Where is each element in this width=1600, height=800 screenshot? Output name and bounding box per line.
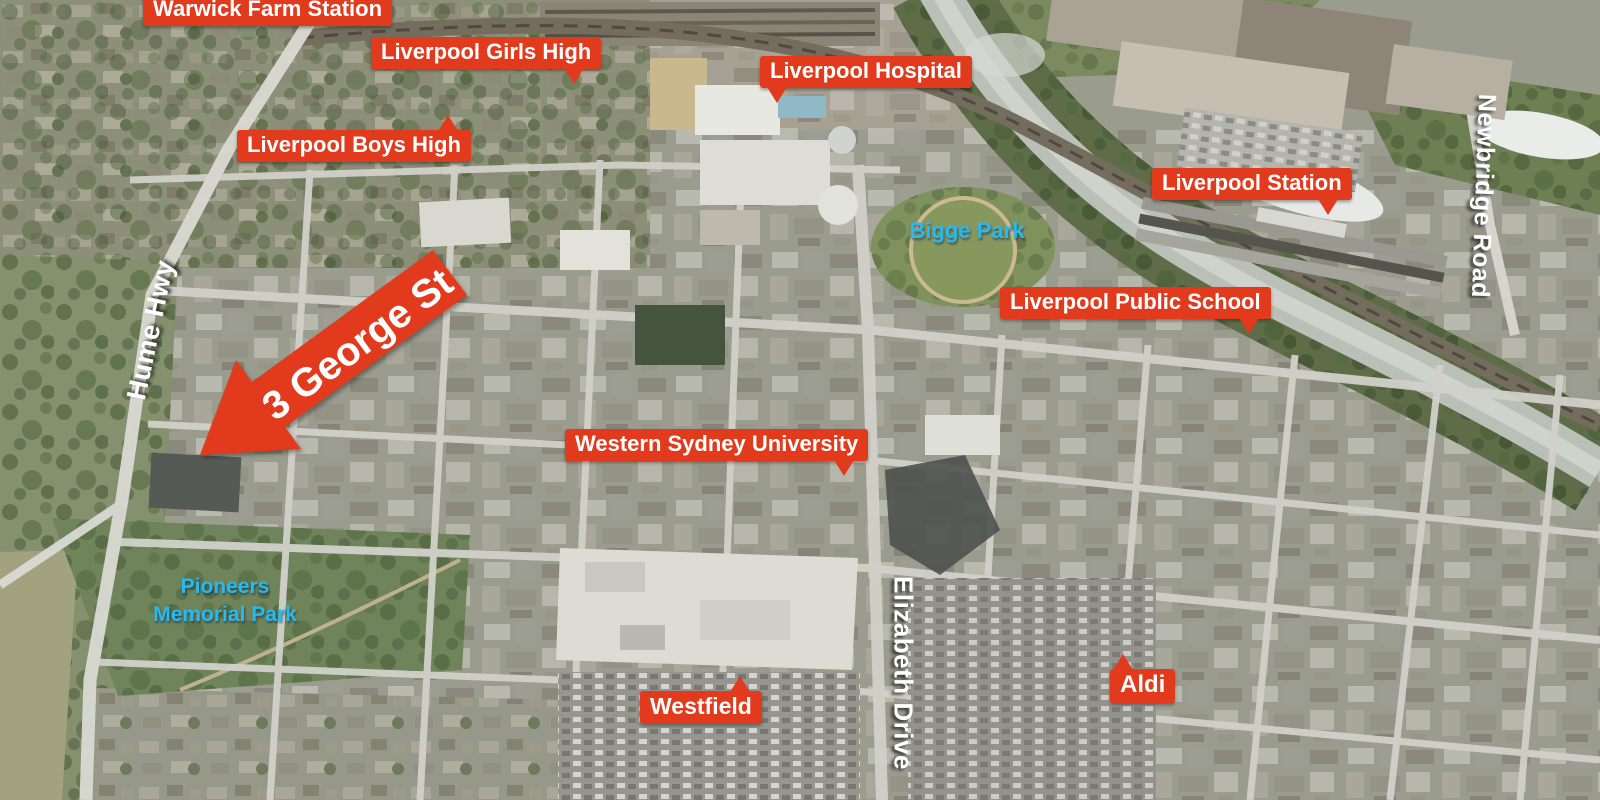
western-sydney-university-text: Western Sydney University [575, 432, 858, 456]
pointer-tail [730, 676, 750, 692]
hume-hwy-text: Hume Hwy [121, 257, 181, 402]
liverpool-public-school-label: Liverpool Public School [1000, 287, 1271, 319]
pointer-tail [767, 87, 787, 103]
westfield-label: Westfield [640, 691, 762, 724]
pointer-tail [1113, 654, 1133, 670]
pioneers-memorial-park-text: Memorial Park [153, 601, 297, 629]
labels-layer: Warwick Farm StationLiverpool Girls High… [0, 0, 1600, 800]
newbridge-road-label: Newbridge Road [1465, 93, 1501, 298]
pointer-tail [438, 115, 458, 131]
liverpool-public-school-text: Liverpool Public School [1010, 290, 1261, 314]
bigge-park-text: Bigge Park [910, 217, 1025, 245]
pioneers-memorial-park-label: PioneersMemorial Park [153, 573, 297, 629]
elizabeth-drive-text: Elizabeth Drive [888, 576, 919, 770]
elizabeth-drive-label: Elizabeth Drive [888, 576, 919, 770]
warwick-farm-station-text: Warwick Farm Station [153, 0, 382, 21]
hume-hwy-label: Hume Hwy [121, 257, 181, 402]
aldi-text: Aldi [1120, 672, 1165, 698]
pointer-tail [564, 68, 584, 84]
newbridge-road-text: Newbridge Road [1465, 93, 1501, 298]
warwick-farm-station-label: Warwick Farm Station [143, 0, 392, 26]
liverpool-girls-high-text: Liverpool Girls High [381, 40, 591, 64]
liverpool-girls-high-label: Liverpool Girls High [371, 37, 601, 69]
aldi-label: Aldi [1110, 669, 1175, 703]
bigge-park-label: Bigge Park [910, 217, 1025, 245]
pointer-tail [834, 460, 854, 476]
liverpool-boys-high-text: Liverpool Boys High [247, 133, 461, 157]
western-sydney-university-label: Western Sydney University [565, 429, 868, 461]
liverpool-station-label: Liverpool Station [1152, 168, 1352, 200]
liverpool-boys-high-label: Liverpool Boys High [237, 130, 471, 162]
pioneers-memorial-park-text: Pioneers [153, 573, 297, 601]
pointer-tail [1318, 199, 1338, 215]
liverpool-station-text: Liverpool Station [1162, 171, 1342, 195]
liverpool-hospital-label: Liverpool Hospital [760, 56, 972, 88]
liverpool-hospital-text: Liverpool Hospital [770, 59, 962, 83]
westfield-text: Westfield [650, 694, 752, 719]
pointer-tail [1239, 318, 1259, 334]
aerial-map-view: 3 George St Warwick Farm StationLiverpoo… [0, 0, 1600, 800]
